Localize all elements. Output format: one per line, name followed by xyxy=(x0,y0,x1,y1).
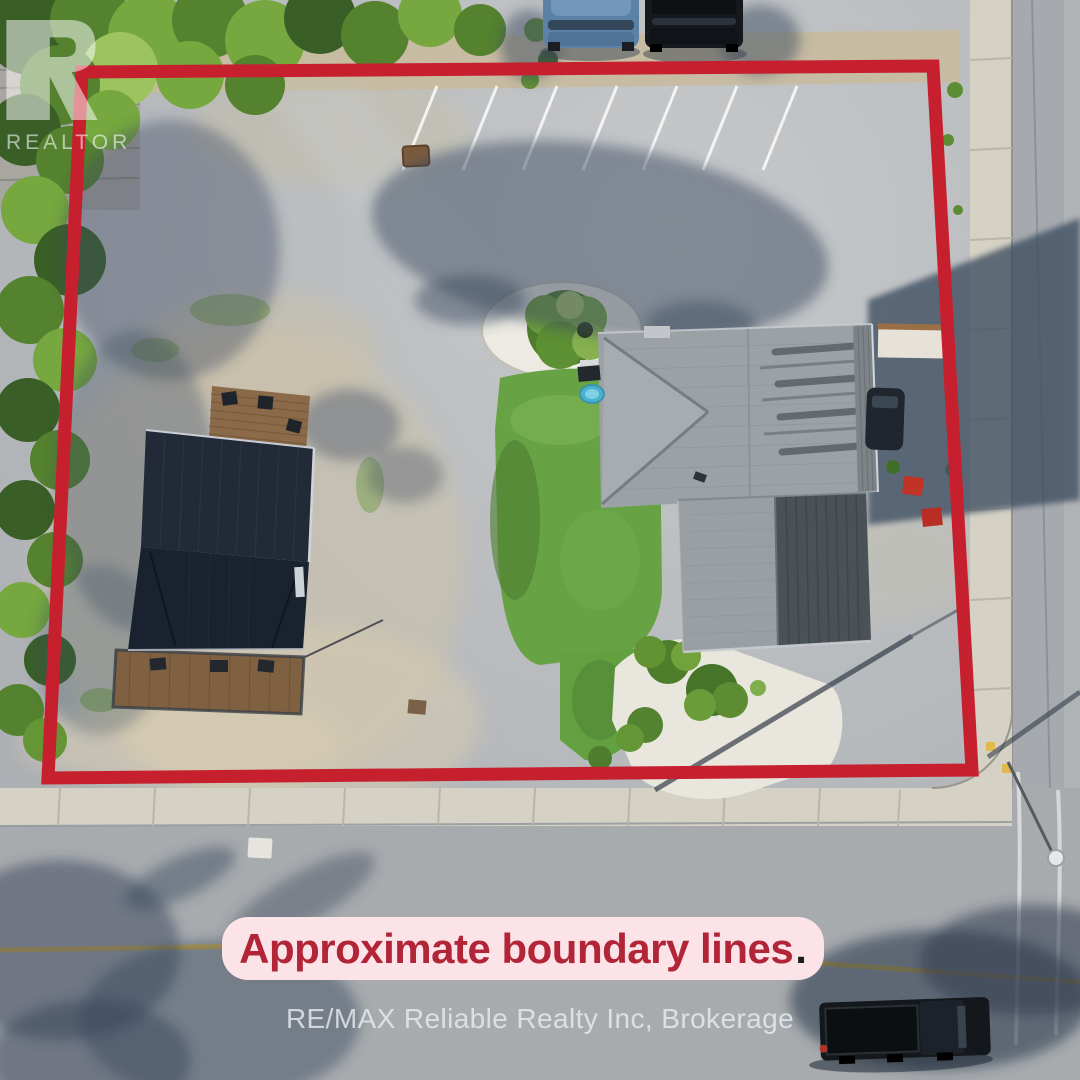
street-lamp xyxy=(1048,850,1064,866)
aerial-photo-container: REALTOR Approximate boundary lines. RE/M… xyxy=(0,0,1080,1080)
realtor-watermark-text: REALTOR xyxy=(6,131,136,155)
realtor-r-logo-icon xyxy=(6,20,98,120)
white-shed xyxy=(878,329,952,358)
red-chair xyxy=(921,507,943,527)
grill xyxy=(577,365,600,382)
banner-text: Approximate boundary lines xyxy=(239,925,793,973)
realtor-watermark: REALTOR xyxy=(6,20,136,155)
banner-period: . xyxy=(795,925,807,973)
boundary-disclaimer-banner: Approximate boundary lines. xyxy=(222,917,824,980)
truck-bottom-right xyxy=(807,997,993,1075)
red-chair xyxy=(902,476,924,497)
lower-deck xyxy=(113,650,304,714)
road-marking xyxy=(247,837,272,858)
left-house-roof xyxy=(141,430,314,562)
brokerage-credit: RE/MAX Reliable Realty Inc, Brokerage xyxy=(286,1003,794,1035)
